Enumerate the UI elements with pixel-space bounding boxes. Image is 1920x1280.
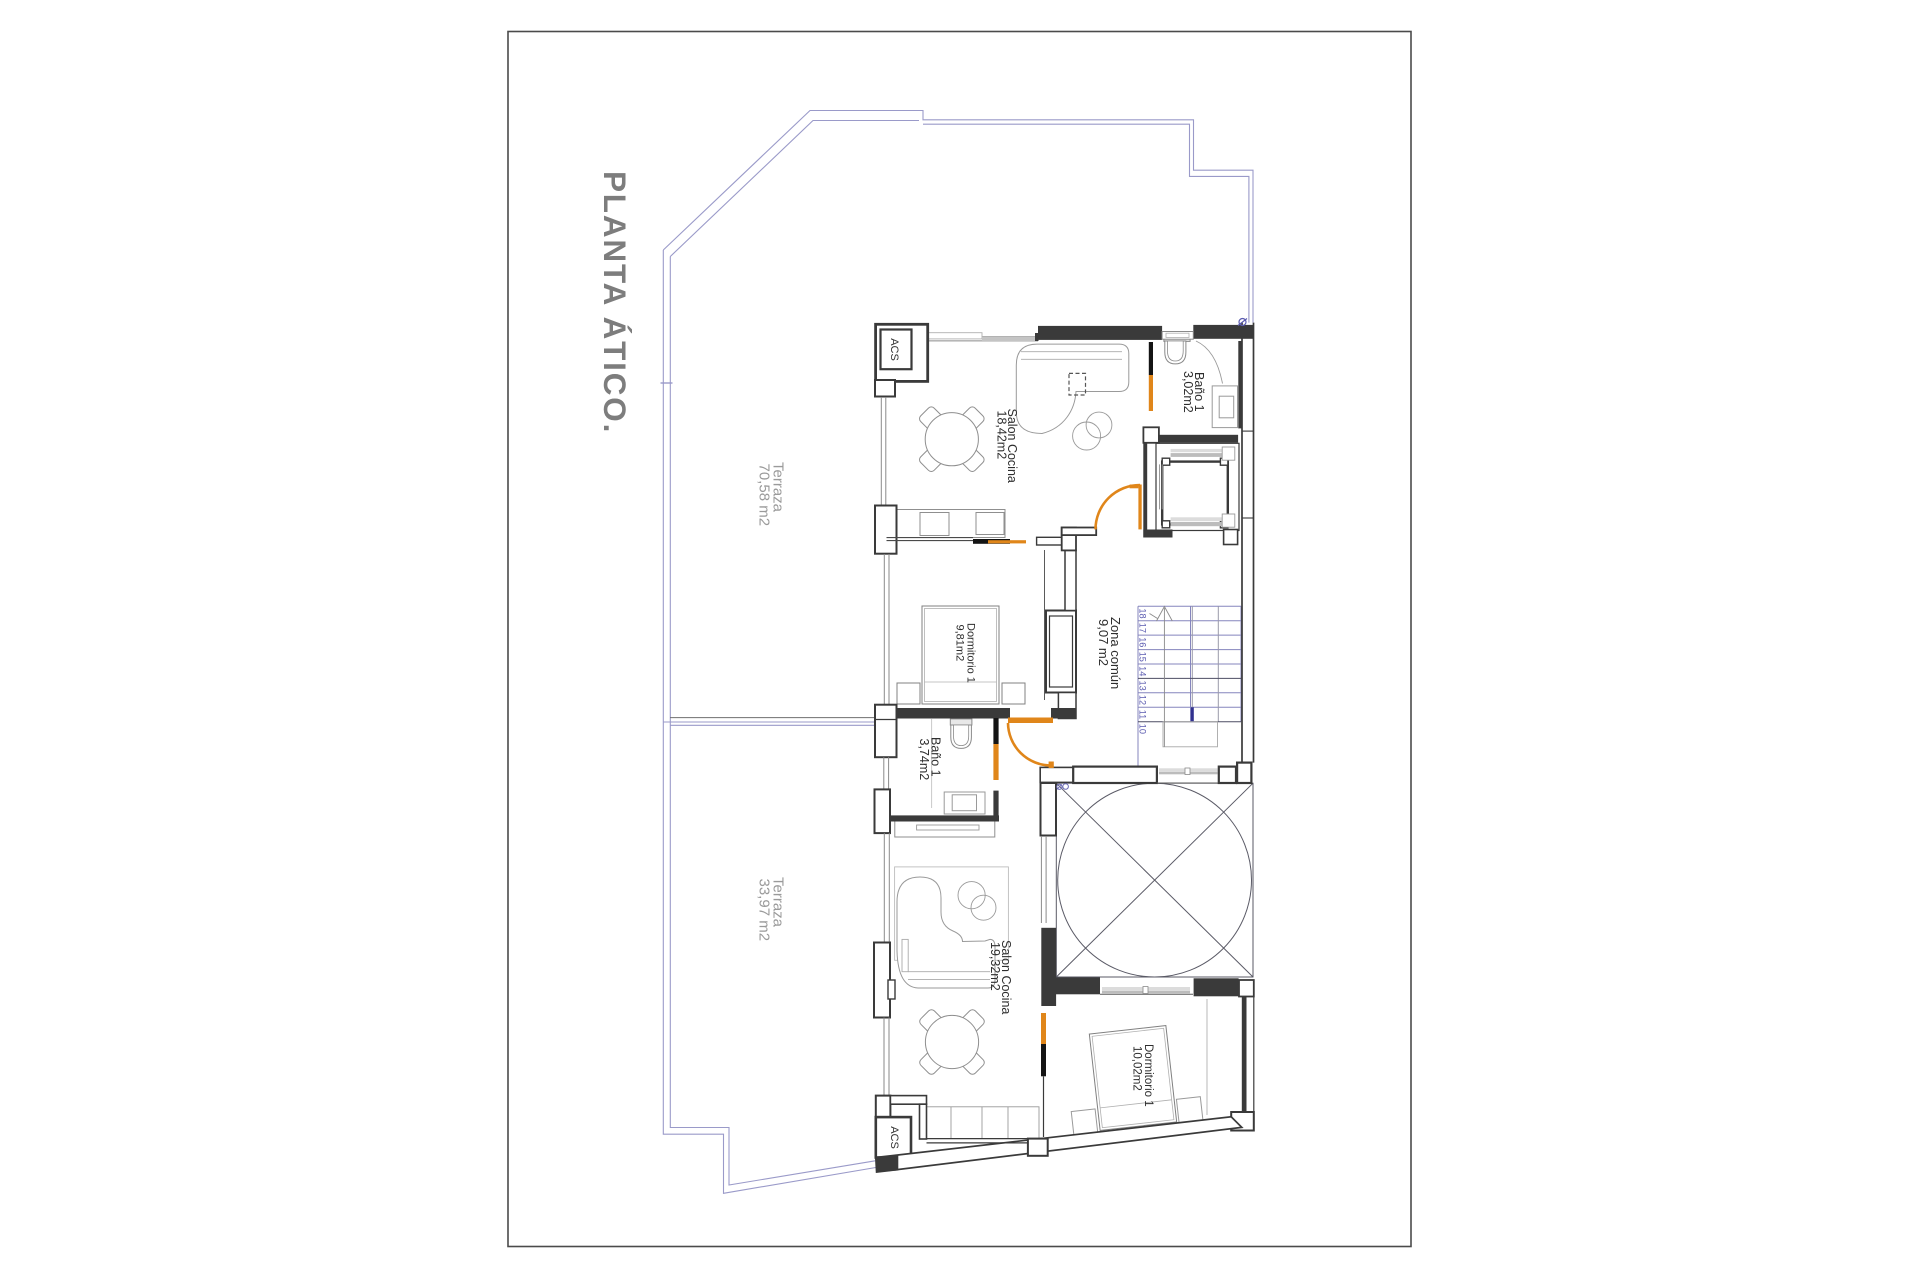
svg-text:9,07 m2: 9,07 m2 bbox=[1096, 619, 1111, 666]
svg-text:18,42m2: 18,42m2 bbox=[995, 411, 1009, 460]
svg-text:10,02m2: 10,02m2 bbox=[1131, 1046, 1143, 1091]
svg-text:3,02m2: 3,02m2 bbox=[1181, 371, 1195, 413]
svg-text:33,97 m2: 33,97 m2 bbox=[756, 879, 773, 942]
svg-text:Dormitorio 1: Dormitorio 1 bbox=[1142, 1044, 1154, 1107]
svg-text:11: 11 bbox=[1138, 710, 1148, 720]
svg-text:PLANTA ÁTICO.: PLANTA ÁTICO. bbox=[597, 171, 633, 434]
svg-text:10: 10 bbox=[1138, 724, 1148, 734]
svg-text:17: 17 bbox=[1138, 623, 1148, 633]
svg-text:70,58 m2: 70,58 m2 bbox=[756, 464, 773, 527]
svg-text:14: 14 bbox=[1138, 666, 1148, 676]
svg-text:15: 15 bbox=[1138, 652, 1148, 662]
svg-text:ACS: ACS bbox=[888, 338, 900, 361]
svg-text:9,81m2: 9,81m2 bbox=[954, 625, 966, 662]
svg-text:3,74m2: 3,74m2 bbox=[917, 739, 931, 781]
svg-text:12: 12 bbox=[1138, 695, 1148, 705]
svg-text:19,32m2: 19,32m2 bbox=[988, 942, 1002, 991]
svg-text:ACS: ACS bbox=[888, 1126, 900, 1149]
svg-text:18: 18 bbox=[1138, 608, 1148, 618]
svg-text:13: 13 bbox=[1138, 680, 1148, 690]
svg-text:16: 16 bbox=[1138, 637, 1148, 647]
